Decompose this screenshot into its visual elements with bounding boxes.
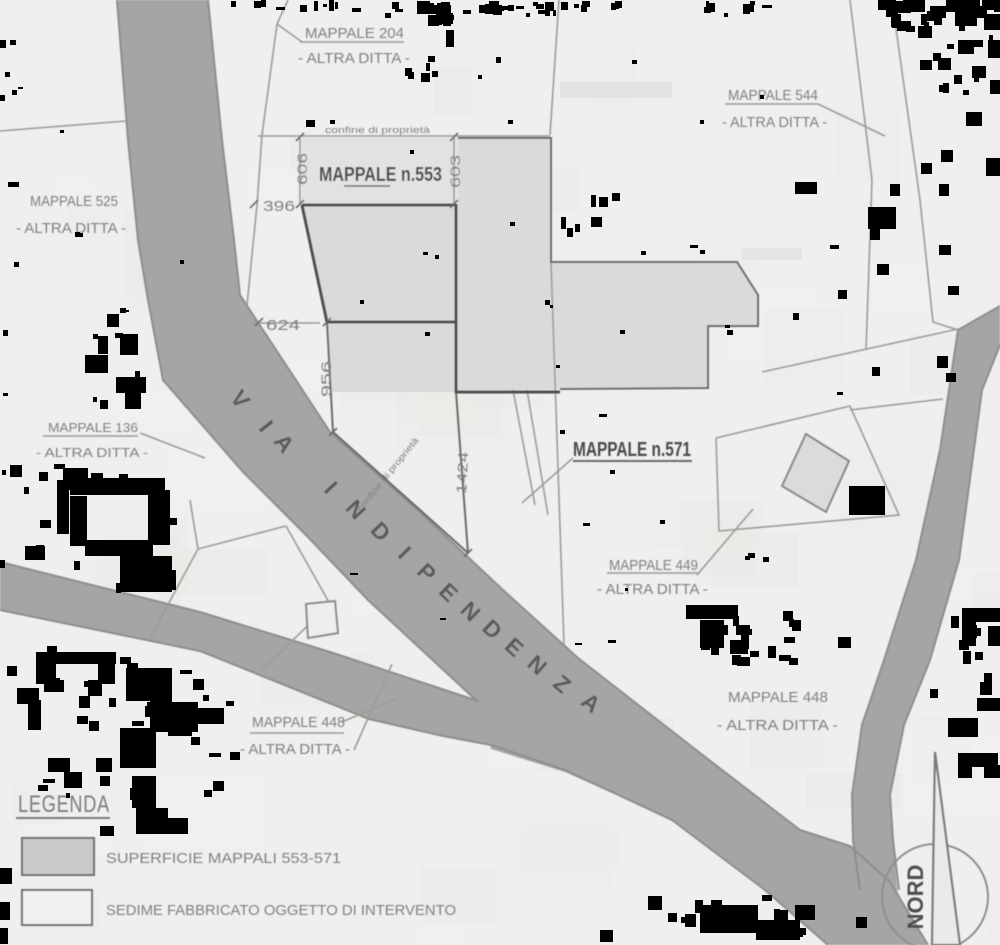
svg-text:- ALTRA DITTA -: - ALTRA DITTA -	[597, 582, 708, 598]
svg-text:606: 606	[294, 153, 310, 185]
svg-text:LEGENDA: LEGENDA	[18, 791, 110, 818]
svg-text:- ALTRA DITTA -: - ALTRA DITTA -	[240, 742, 350, 758]
svg-text:396: 396	[263, 198, 295, 215]
svg-text:MAPPALE 136: MAPPALE 136	[48, 420, 138, 435]
svg-text:1424: 1424	[453, 451, 471, 494]
svg-text:MAPPALE n.571: MAPPALE n.571	[573, 439, 691, 461]
svg-text:MAPPALE 544: MAPPALE 544	[728, 88, 818, 104]
svg-text:MAPPALE 525: MAPPALE 525	[30, 194, 118, 210]
svg-text:603: 603	[447, 155, 463, 188]
svg-text:MAPPALE 204: MAPPALE 204	[305, 26, 404, 42]
svg-text:956: 956	[318, 361, 334, 397]
svg-text:MAPPALE 448: MAPPALE 448	[252, 715, 345, 731]
svg-text:SEDIME FABBRICATO OGGETTO DI I: SEDIME FABBRICATO OGGETTO DI INTERVENTO	[106, 902, 456, 919]
svg-text:MAPPALE n.553: MAPPALE n.553	[319, 164, 442, 186]
svg-text:MAPPALE 448: MAPPALE 448	[728, 690, 828, 706]
svg-text:- ALTRA DITTA -: - ALTRA DITTA -	[298, 51, 410, 67]
svg-text:- ALTRA DITTA -: - ALTRA DITTA -	[16, 221, 126, 237]
svg-text:confine di proprietà: confine di proprietà	[325, 125, 431, 136]
svg-text:624: 624	[266, 317, 300, 334]
svg-text:- ALTRA DITTA -: - ALTRA DITTA -	[717, 718, 838, 734]
svg-text:SUPERFICIE MAPPALI 553-571: SUPERFICIE MAPPALI 553-571	[106, 850, 341, 867]
svg-text:- ALTRA DITTA -: - ALTRA DITTA -	[722, 115, 827, 131]
svg-text:MAPPALE 449: MAPPALE 449	[609, 558, 698, 574]
svg-text:NORD: NORD	[903, 865, 928, 930]
svg-text:- ALTRA DITTA -: - ALTRA DITTA -	[36, 445, 148, 460]
